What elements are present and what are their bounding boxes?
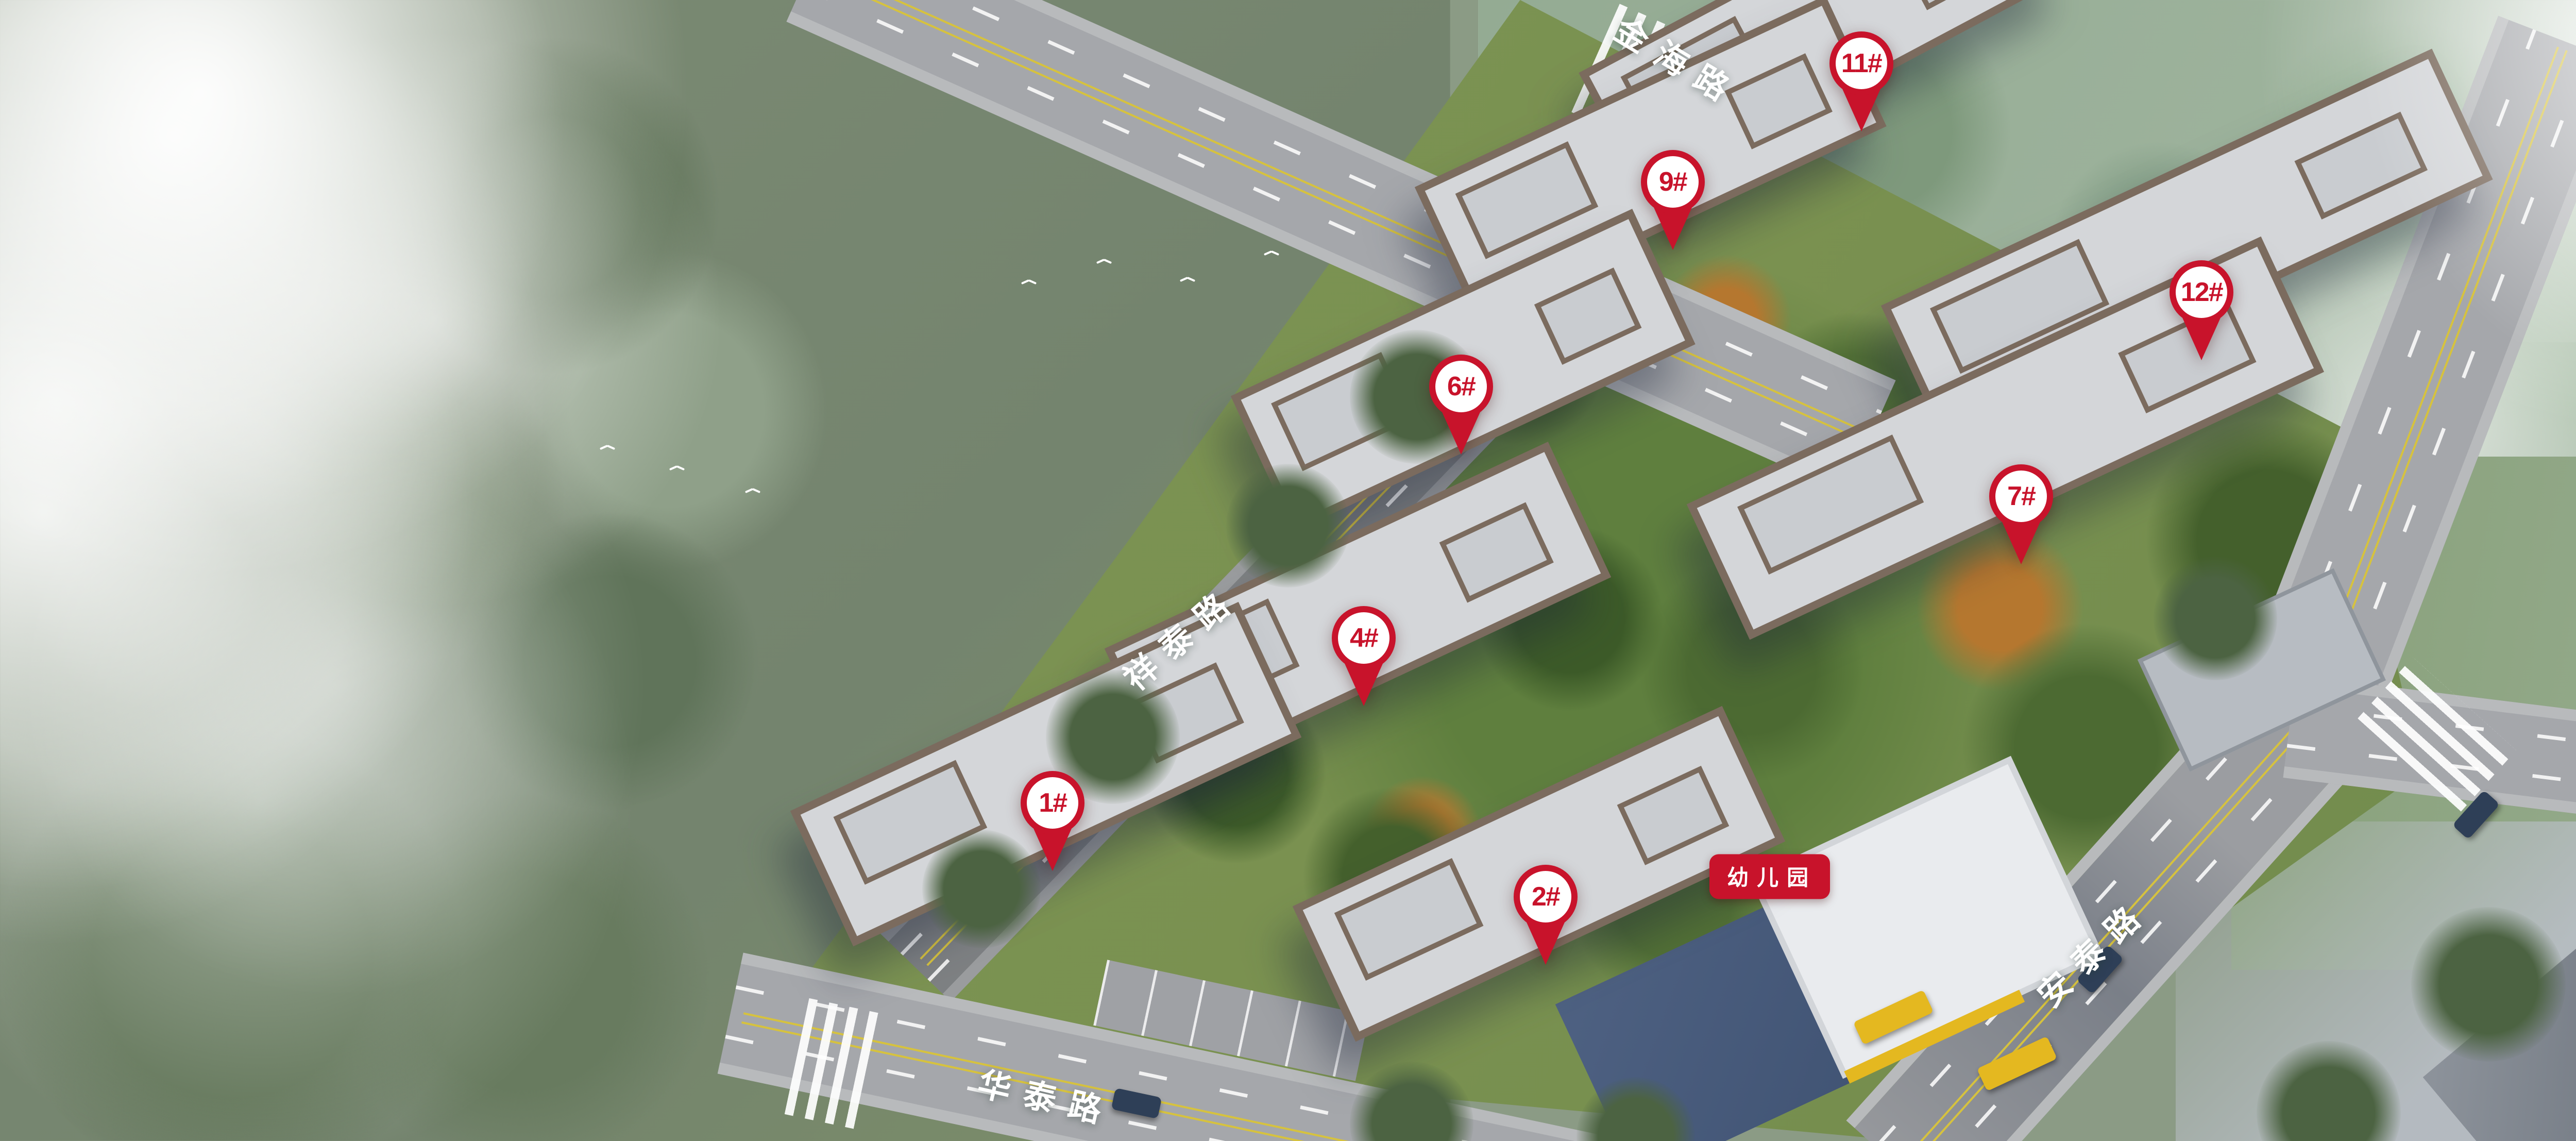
kindergarten-badge[interactable]: 幼儿园 [1709,854,1830,899]
pin-label: 7# [2007,481,2035,512]
bird-icon [1180,278,1195,286]
pin-label: 12# [2181,277,2223,308]
pin-circle: 7# [1989,464,2053,528]
pin-circle: 6# [1429,355,1493,418]
pin-label: 9# [1659,166,1687,197]
pin-circle: 4# [1332,606,1396,670]
pin-circle: 1# [1021,771,1084,835]
tree-canopy [2154,557,2277,680]
pin-circle: 12# [2170,260,2233,324]
bird-icon [669,467,685,474]
bird-icon [1096,260,1112,267]
pin-label: 1# [1039,787,1066,818]
tree-canopy [922,830,1041,948]
aerial-site-rendering: 金海路 祥泰路 安泰路 华泰路 1# 2# 4# 6# 7# 9# 11# 12… [0,0,2576,1141]
pin-label: 6# [1447,371,1475,402]
pin-label: 4# [1350,623,1378,653]
pin-circle: 9# [1641,150,1705,214]
bird-icon [745,490,760,497]
bird-icon [1264,252,1279,259]
tree-canopy [1226,464,1350,588]
bird-icon [600,446,615,454]
pin-circle: 11# [1829,31,1893,95]
bird-icon [1021,281,1037,288]
pin-label: 11# [1841,48,1882,79]
pin-circle: 2# [1514,865,1578,929]
pin-label: 2# [1532,881,1560,912]
tree-canopy [2411,907,2566,1062]
